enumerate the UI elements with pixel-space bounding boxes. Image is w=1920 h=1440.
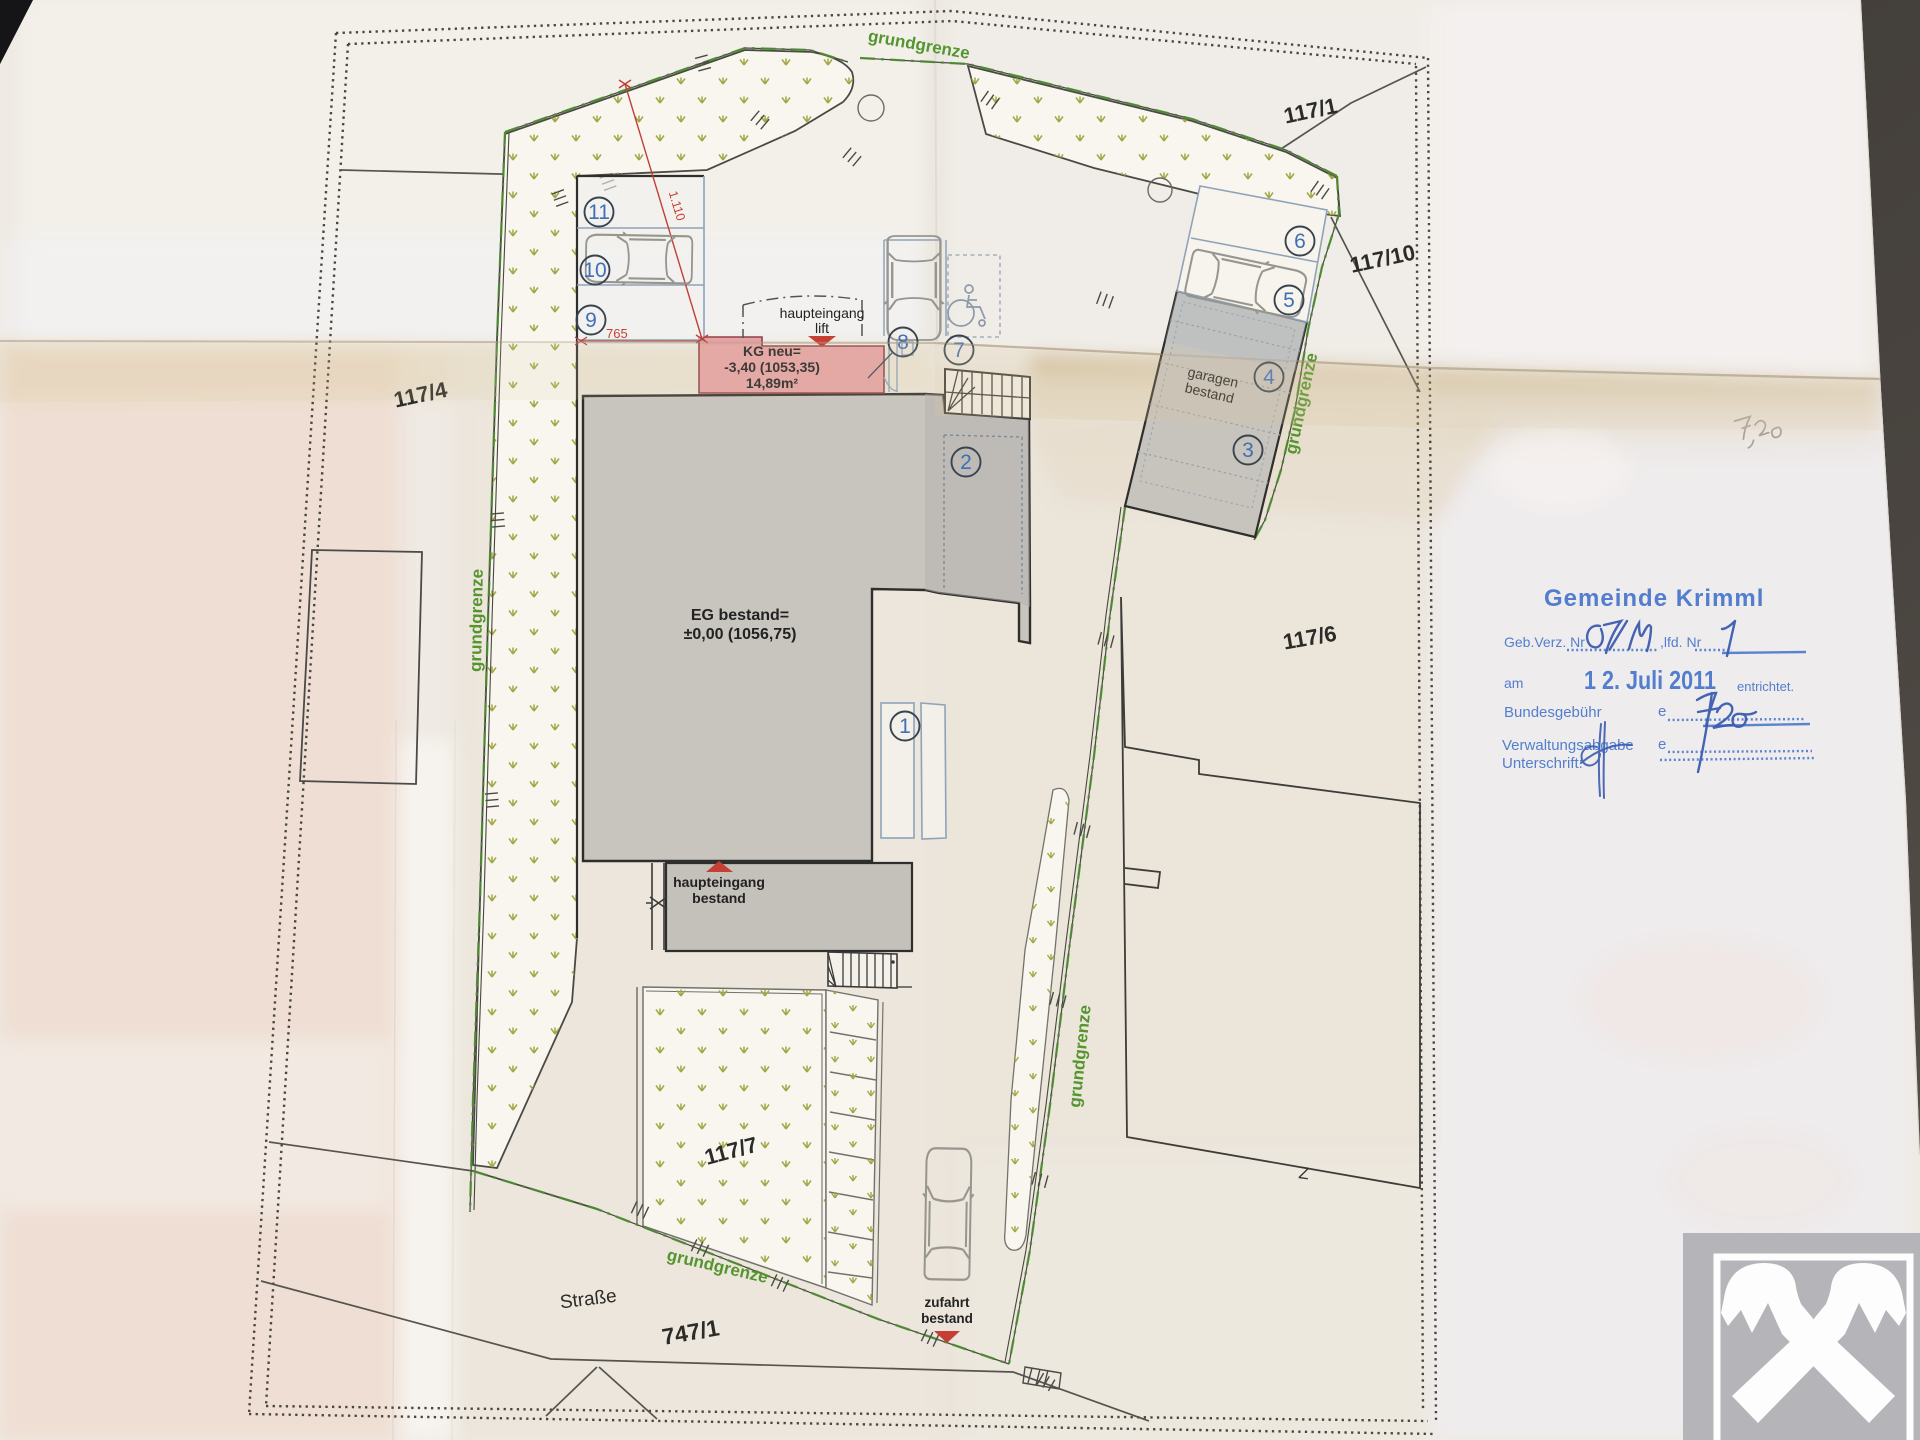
svg-text:bestand: bestand (921, 1311, 973, 1326)
svg-text:10: 10 (583, 259, 606, 282)
svg-text:Unterschrift:: Unterschrift: (1502, 755, 1583, 772)
svg-text:1 2. Juli 2011: 1 2. Juli 2011 (1584, 665, 1716, 695)
svg-text:zufahrt: zufahrt (925, 1295, 971, 1310)
svg-text:e: e (1658, 703, 1666, 720)
svg-text:EG bestand=: EG bestand= (691, 607, 789, 624)
svg-text:5: 5 (1283, 289, 1295, 312)
svg-text:±0,00 (1056,75): ±0,00 (1056,75) (684, 626, 797, 643)
svg-text:grundgrenze: grundgrenze (466, 569, 487, 672)
svg-text:bestand: bestand (692, 890, 746, 906)
svg-text:6: 6 (1294, 230, 1306, 253)
svg-text:1: 1 (899, 715, 911, 738)
svg-text:Geb.Verz. Nr: Geb.Verz. Nr (1504, 634, 1585, 650)
svg-text:entrichtet.: entrichtet. (1737, 679, 1794, 694)
svg-text:e: e (1658, 736, 1666, 753)
svg-text:9: 9 (585, 309, 597, 332)
svg-text:lift: lift (815, 320, 829, 336)
svg-text:2: 2 (960, 451, 972, 474)
svg-text:,lfd. Nr: ,lfd. Nr (1660, 634, 1702, 650)
svg-text:765: 765 (606, 326, 628, 341)
svg-text:am: am (1504, 675, 1523, 691)
svg-text:3: 3 (1242, 439, 1254, 462)
svg-text:Gemeinde Krimml: Gemeinde Krimml (1544, 585, 1764, 612)
svg-text:haupteingang: haupteingang (673, 874, 765, 890)
svg-text:haupteingang: haupteingang (780, 305, 865, 321)
svg-text:11: 11 (588, 201, 610, 224)
svg-text:Bundesgebühr: Bundesgebühr (1504, 704, 1602, 721)
